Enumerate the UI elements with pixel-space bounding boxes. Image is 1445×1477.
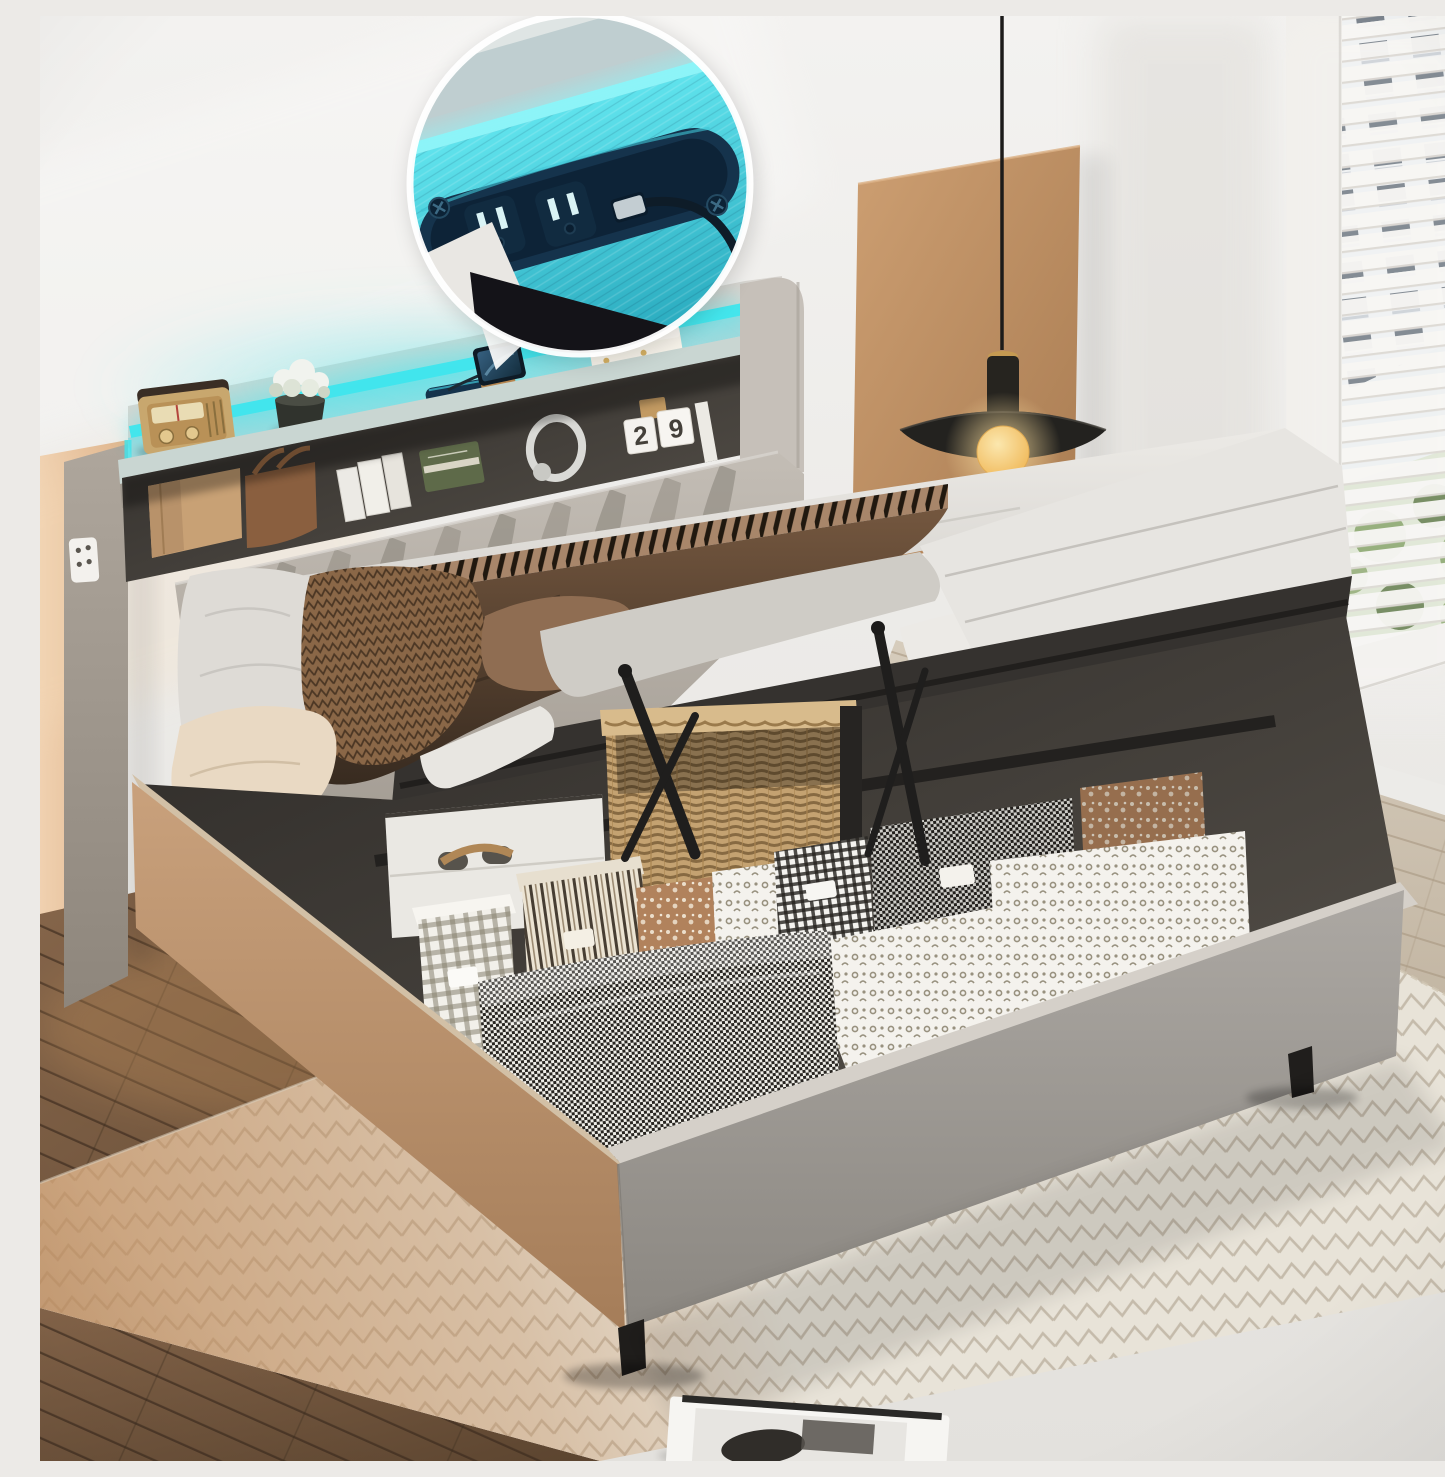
scene: 2 9 — [40, 16, 1445, 1461]
vignette — [40, 16, 1445, 1461]
product-photo-storage-bed: 2 9 — [40, 16, 1445, 1461]
